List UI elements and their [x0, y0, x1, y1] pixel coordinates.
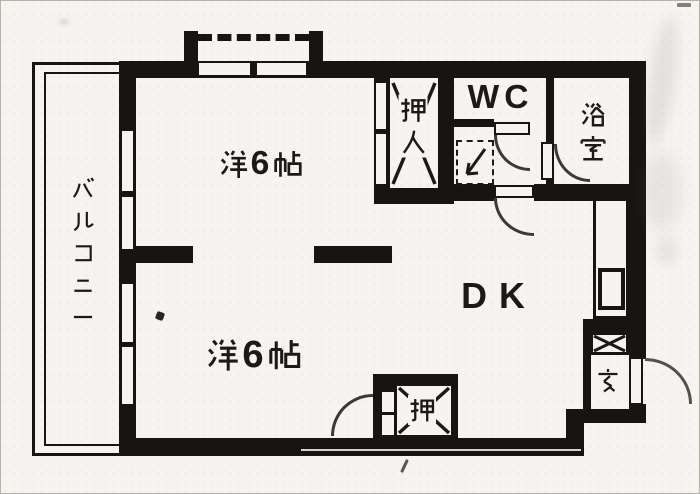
oshiire-sliding-door-1 — [376, 83, 386, 129]
wall-hall-bottom-left — [454, 184, 494, 201]
kanji-glyph — [204, 338, 238, 372]
hall-dk-door-leaf — [494, 185, 534, 198]
kanji-glyph — [71, 177, 95, 201]
wall-counter-bottom — [584, 319, 629, 333]
kanji-glyph — [580, 136, 607, 163]
bay-window-dashed-line — [198, 34, 309, 41]
label-room-lower: 6 — [204, 336, 301, 374]
wall-oshiire-right — [438, 78, 454, 204]
scan-noise — [677, 3, 691, 7]
scan-speck — [400, 459, 409, 473]
scan-noise — [641, 151, 681, 231]
bath-door-leaf — [541, 142, 554, 180]
closet-lower-door-2 — [382, 415, 394, 435]
window-upper-room-2 — [122, 197, 133, 249]
entrance-door-leaf — [629, 357, 643, 405]
kanji-glyph — [596, 369, 621, 394]
kanji-glyph — [400, 97, 427, 124]
wall-bath-left-top — [546, 78, 554, 144]
label-room-upper: 6 — [218, 147, 303, 181]
shoe-box-x-mark — [593, 335, 626, 352]
window-upper-room-1 — [122, 131, 133, 191]
kanji-glyph — [71, 273, 95, 297]
label-balcony — [71, 177, 95, 329]
oshiire-sliding-door-2 — [376, 134, 386, 184]
kanji-glyph — [580, 102, 607, 129]
label-bath — [579, 100, 608, 165]
label-char: 6 — [251, 147, 270, 181]
kitchen-sink — [598, 268, 625, 310]
label-char: D — [461, 279, 487, 315]
bay-post-right — [309, 31, 323, 63]
kanji-glyph — [272, 149, 302, 179]
hall-dk-door-arc — [494, 198, 534, 236]
label-char: K — [499, 279, 525, 315]
scan-speck — [155, 311, 165, 321]
kanji-glyph — [71, 209, 95, 233]
floor-plan: 6 6 DK WC — [0, 0, 700, 494]
washing-machine-arrow-icon — [459, 143, 491, 182]
scan-noise — [59, 19, 69, 25]
bay-window-glass-2 — [257, 63, 306, 75]
label-char: C — [504, 81, 528, 115]
wall-room-divider-right — [314, 246, 392, 263]
kanji-glyph — [268, 338, 302, 372]
wall-wc-bottom — [454, 119, 494, 127]
scan-line-artifact — [301, 449, 581, 451]
scan-noise — [640, 15, 684, 147]
bay-window-glass-1 — [199, 63, 250, 75]
scan-noise — [656, 236, 678, 266]
window-lower-room-1 — [122, 284, 133, 342]
kanji-glyph — [71, 305, 95, 329]
label-oshiire — [399, 95, 428, 158]
kanji-glyph — [409, 397, 435, 423]
closet-lower-door-1 — [382, 392, 394, 412]
label-wc: WC — [468, 81, 529, 115]
kanji-glyph — [218, 149, 248, 179]
wall-oshiire-bottom — [374, 188, 454, 204]
kanji-glyph — [71, 241, 95, 265]
bay-post-left — [184, 31, 198, 63]
wall-bottom — [119, 438, 584, 456]
label-entrance — [595, 367, 622, 396]
closet-lower-door-arc — [331, 394, 373, 436]
window-lower-room-2 — [122, 347, 133, 404]
label-char: 6 — [242, 336, 263, 374]
label-dk: DK — [461, 279, 525, 315]
entrance-door-arc — [645, 358, 692, 404]
label-char: W — [468, 81, 500, 115]
label-closet-lower — [408, 395, 436, 425]
kanji-glyph — [400, 129, 427, 156]
wc-door-leaf — [494, 122, 530, 135]
wc-door-arc — [494, 135, 530, 171]
